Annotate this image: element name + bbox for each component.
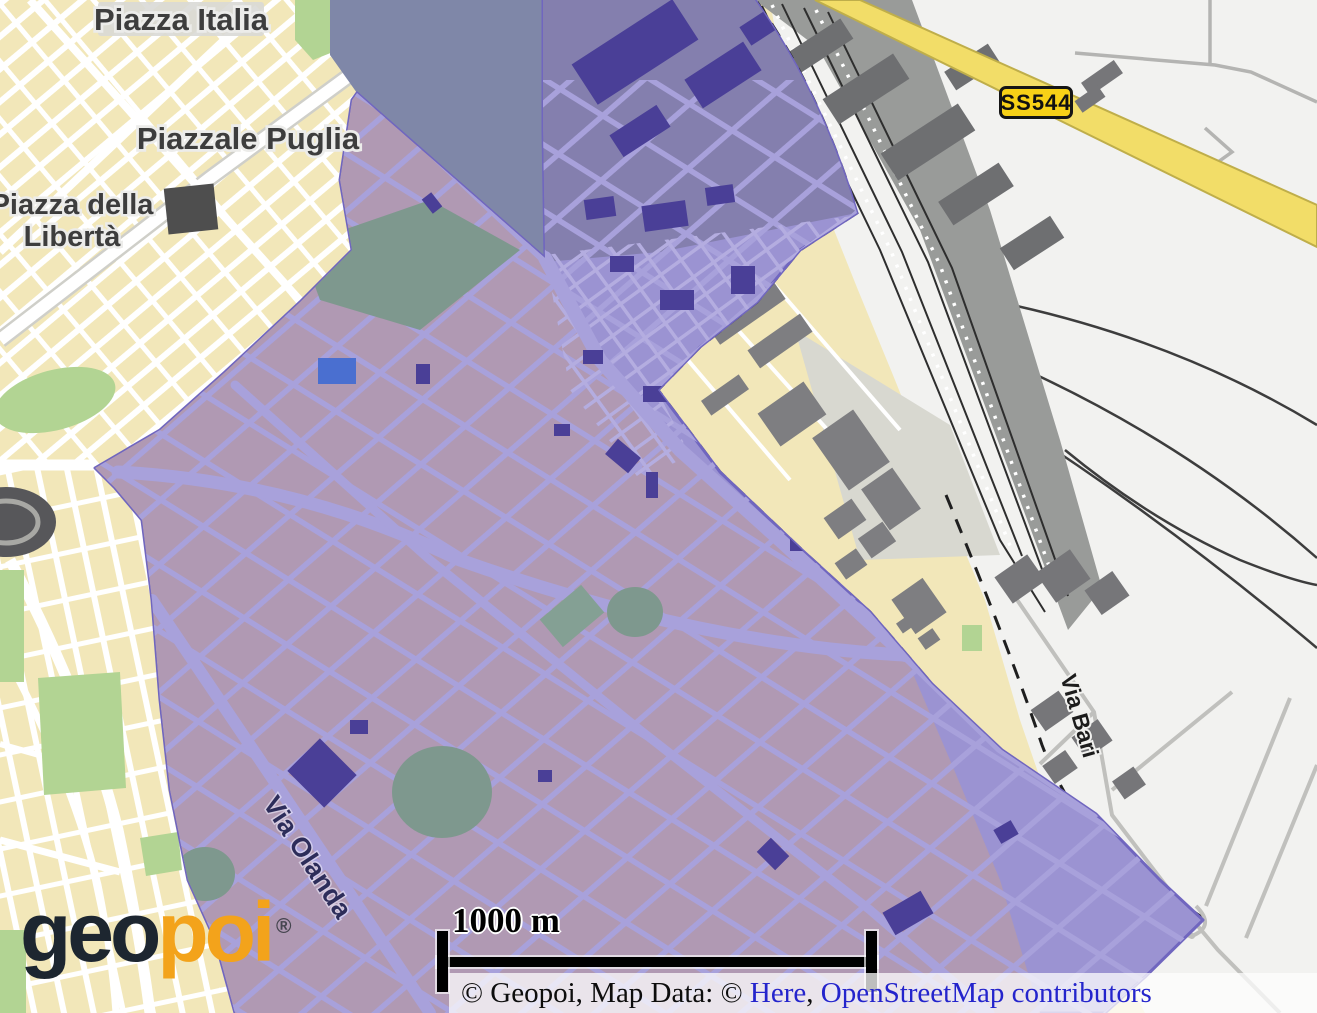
attribution-prefix: © Geopoi, Map Data: © [461,977,750,1010]
logo-poi: poi [157,885,271,979]
scale-bar-label: 1000 m [452,901,560,941]
label-piazza-della-liberta-line1: Piazza della [0,189,154,221]
registered-trademark-icon: ® [276,916,291,937]
attribution-separator: , [806,977,821,1010]
geopoi-logo: geopoi ® [20,890,271,974]
scale-bar [437,957,877,967]
openstreetmap-link[interactable]: OpenStreetMap contributors [821,977,1152,1010]
map-canvas[interactable]: Piazza Italia Piazzale Puglia Piazza del… [0,0,1317,1013]
label-piazza-italia: Piazza Italia [94,2,269,37]
here-link[interactable]: Here [750,977,806,1010]
pond [318,358,356,384]
road-shield-ss544: SS544 [999,86,1073,119]
attribution-bar: © Geopoi, Map Data: © Here, OpenStreetMa… [449,973,1317,1013]
label-piazza-della-liberta-line2: Libertà [24,221,122,253]
map-viewer: Piazza Italia Piazzale Puglia Piazza del… [0,0,1317,1013]
large-building [164,184,219,235]
label-piazzale-puglia: Piazzale Puglia [137,121,360,156]
scale-bar-cap-left [437,931,448,992]
logo-geo: geo [20,885,157,979]
